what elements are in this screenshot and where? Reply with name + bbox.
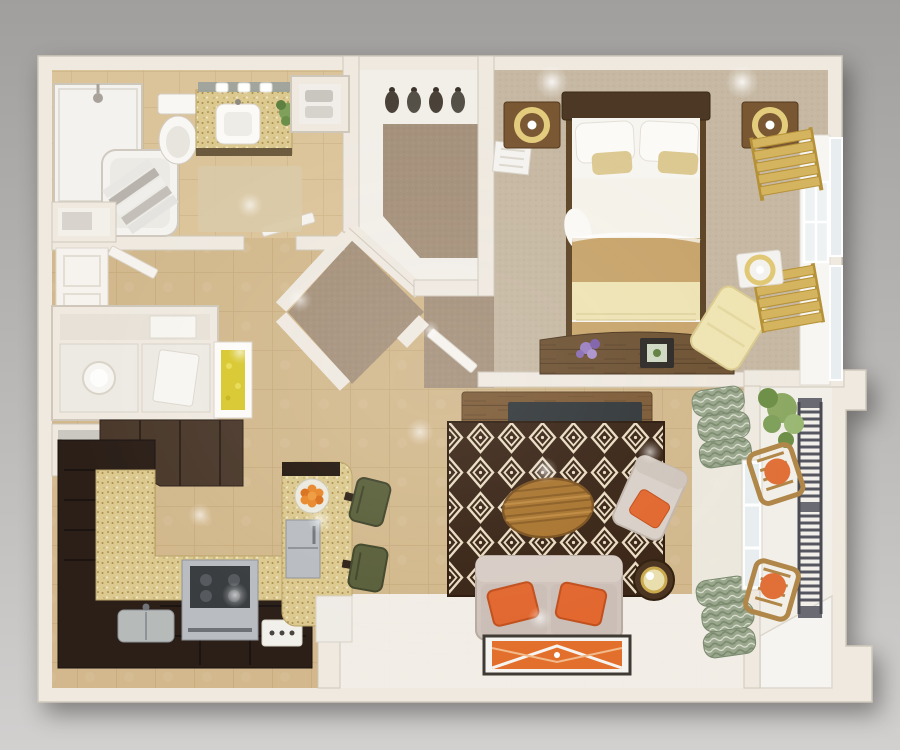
shower-head (93, 93, 103, 103)
linen-towel-1 (305, 90, 333, 102)
floor-plan-render (0, 0, 900, 750)
kitchen-faucet (143, 604, 150, 611)
ceiling-light-glow (725, 65, 759, 99)
bedroom-window-1 (830, 138, 842, 256)
vanity-lights (215, 81, 273, 95)
sink-faucet (235, 99, 241, 105)
light-glows (60, 90, 820, 670)
bedroom-window-2 (830, 266, 842, 380)
toilet-tank (158, 94, 198, 114)
floor-plan-stage (0, 0, 900, 750)
niche-item (62, 212, 92, 230)
toilet-seat (166, 126, 190, 158)
